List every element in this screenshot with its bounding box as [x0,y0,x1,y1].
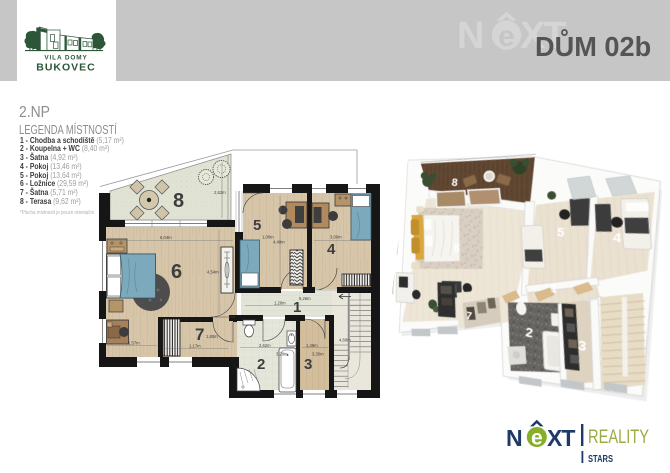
svg-text:2: 2 [257,356,265,373]
svg-text:5,04m: 5,04m [160,235,172,240]
svg-text:6: 6 [171,261,182,283]
svg-text:1,17m: 1,17m [189,344,201,349]
svg-text:1: 1 [550,282,558,296]
svg-text:7: 7 [466,310,473,323]
svg-text:2,57m: 2,57m [128,341,140,346]
svg-text:XT: XT [547,425,575,451]
svg-text:1,20m: 1,20m [274,301,286,306]
svg-text:3: 3 [304,356,312,373]
svg-text:4,54m: 4,54m [207,270,219,275]
svg-text:4,40m: 4,40m [273,240,285,245]
svg-text:STARS: STARS [588,453,613,465]
svg-text:4,60m: 4,60m [339,338,351,343]
svg-text:e: e [531,427,543,450]
svg-text:3,20m: 3,20m [276,352,288,357]
svg-text:3,00m: 3,00m [330,235,342,240]
svg-text:5: 5 [253,217,261,234]
svg-text:2,62m: 2,62m [214,190,226,195]
svg-text:4: 4 [327,241,336,258]
svg-text:1,49m: 1,49m [306,343,318,348]
svg-text:REALITY: REALITY [588,427,649,448]
svg-text:7: 7 [195,325,204,344]
svg-text:8: 8 [173,190,184,212]
svg-text:2,62m: 2,62m [259,343,271,348]
svg-text:N: N [506,425,522,451]
svg-text:1,80m: 1,80m [206,334,218,339]
svg-text:3,30m: 3,30m [312,352,324,357]
svg-text:1: 1 [293,299,301,316]
